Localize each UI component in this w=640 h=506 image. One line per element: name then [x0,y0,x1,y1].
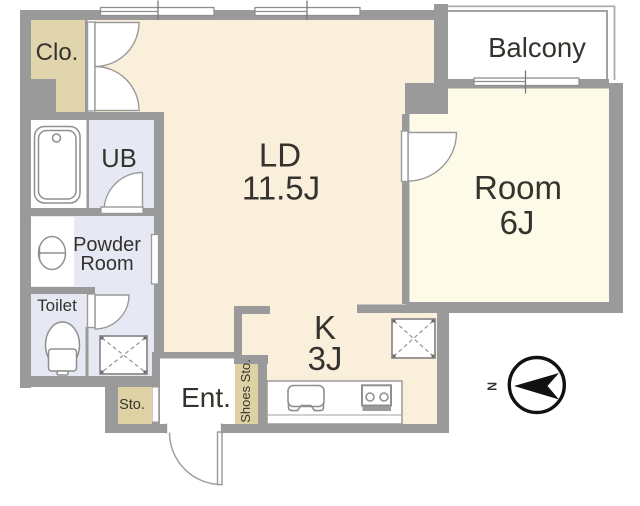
svg-text:Clo.: Clo. [36,39,79,66]
svg-text:Shoes Sto.: Shoes Sto. [238,359,253,423]
svg-text:Toilet: Toilet [37,296,77,315]
svg-text:N: N [486,382,500,391]
svg-text:LD: LD [259,137,301,174]
svg-text:Ent.: Ent. [181,382,231,413]
svg-text:11.5J: 11.5J [242,170,320,207]
svg-text:6J: 6J [500,204,535,241]
svg-text:Room: Room [474,169,562,206]
svg-text:3J: 3J [308,340,343,377]
svg-text:Sto.: Sto. [119,397,145,413]
svg-text:Room: Room [80,253,133,275]
svg-text:Balcony: Balcony [488,32,586,63]
svg-text:UB: UB [101,145,136,173]
